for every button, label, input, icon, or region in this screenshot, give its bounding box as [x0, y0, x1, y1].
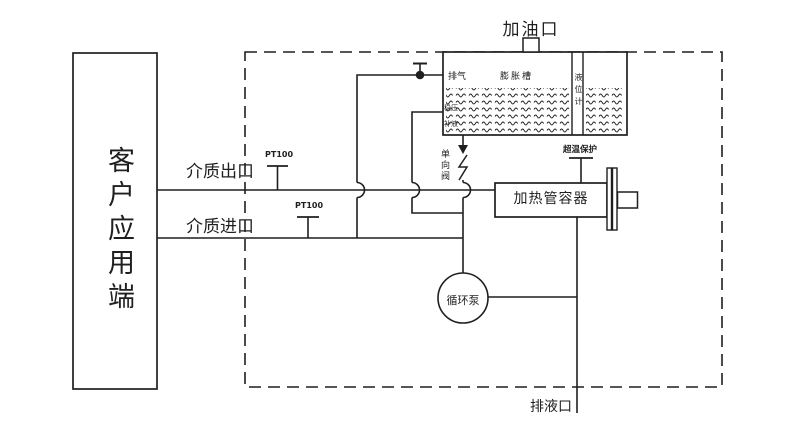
expansion-tank-label: 膨胀槽 — [500, 69, 533, 82]
pressure-stabilize-label: 稳压 — [444, 103, 458, 113]
overtemp-probe-icon — [569, 158, 593, 183]
heater-terminal-icon — [618, 192, 638, 208]
liquid-makeup-label: 补液 — [444, 119, 458, 129]
vent-valve-icon — [413, 64, 427, 80]
pt100-probe-outlet-icon — [267, 166, 288, 190]
check-valve-line — [458, 135, 471, 273]
flow-arrow-icon — [458, 145, 468, 154]
liquid-waves-icon — [586, 88, 624, 133]
level-gauge-label: 液位计 — [573, 73, 584, 109]
overtemp-protection-label: 超温保护 — [563, 143, 597, 155]
check-valve-icon — [459, 155, 467, 180]
piping-diagram: 加油口 客户应用端 排气 膨胀槽 液位计 稳压 补液 单向阀 介质出口 介质进口… — [0, 0, 800, 437]
heater-flange-icon — [607, 168, 617, 230]
customer-box-label: 客户应用端 — [100, 146, 139, 316]
drain-port-label: 排液口 — [530, 396, 572, 416]
check-valve-label: 单向阀 — [439, 149, 452, 182]
heater-vessel-label: 加热管容器 — [495, 183, 607, 217]
pt100-inlet-label: PT100 — [295, 201, 323, 210]
filler-neck — [523, 38, 539, 52]
vent-label: 排气 — [448, 69, 466, 82]
circulation-pump-label: 循环泵 — [438, 292, 488, 308]
pt100-outlet-label: PT100 — [265, 150, 293, 159]
medium-inlet-label: 介质进口 — [186, 212, 254, 237]
medium-outlet-label: 介质出口 — [186, 157, 254, 182]
pt100-probe-inlet-icon — [297, 217, 319, 238]
oil-fill-port-label: 加油口 — [495, 15, 567, 40]
liquid-waves-icon — [446, 88, 569, 133]
